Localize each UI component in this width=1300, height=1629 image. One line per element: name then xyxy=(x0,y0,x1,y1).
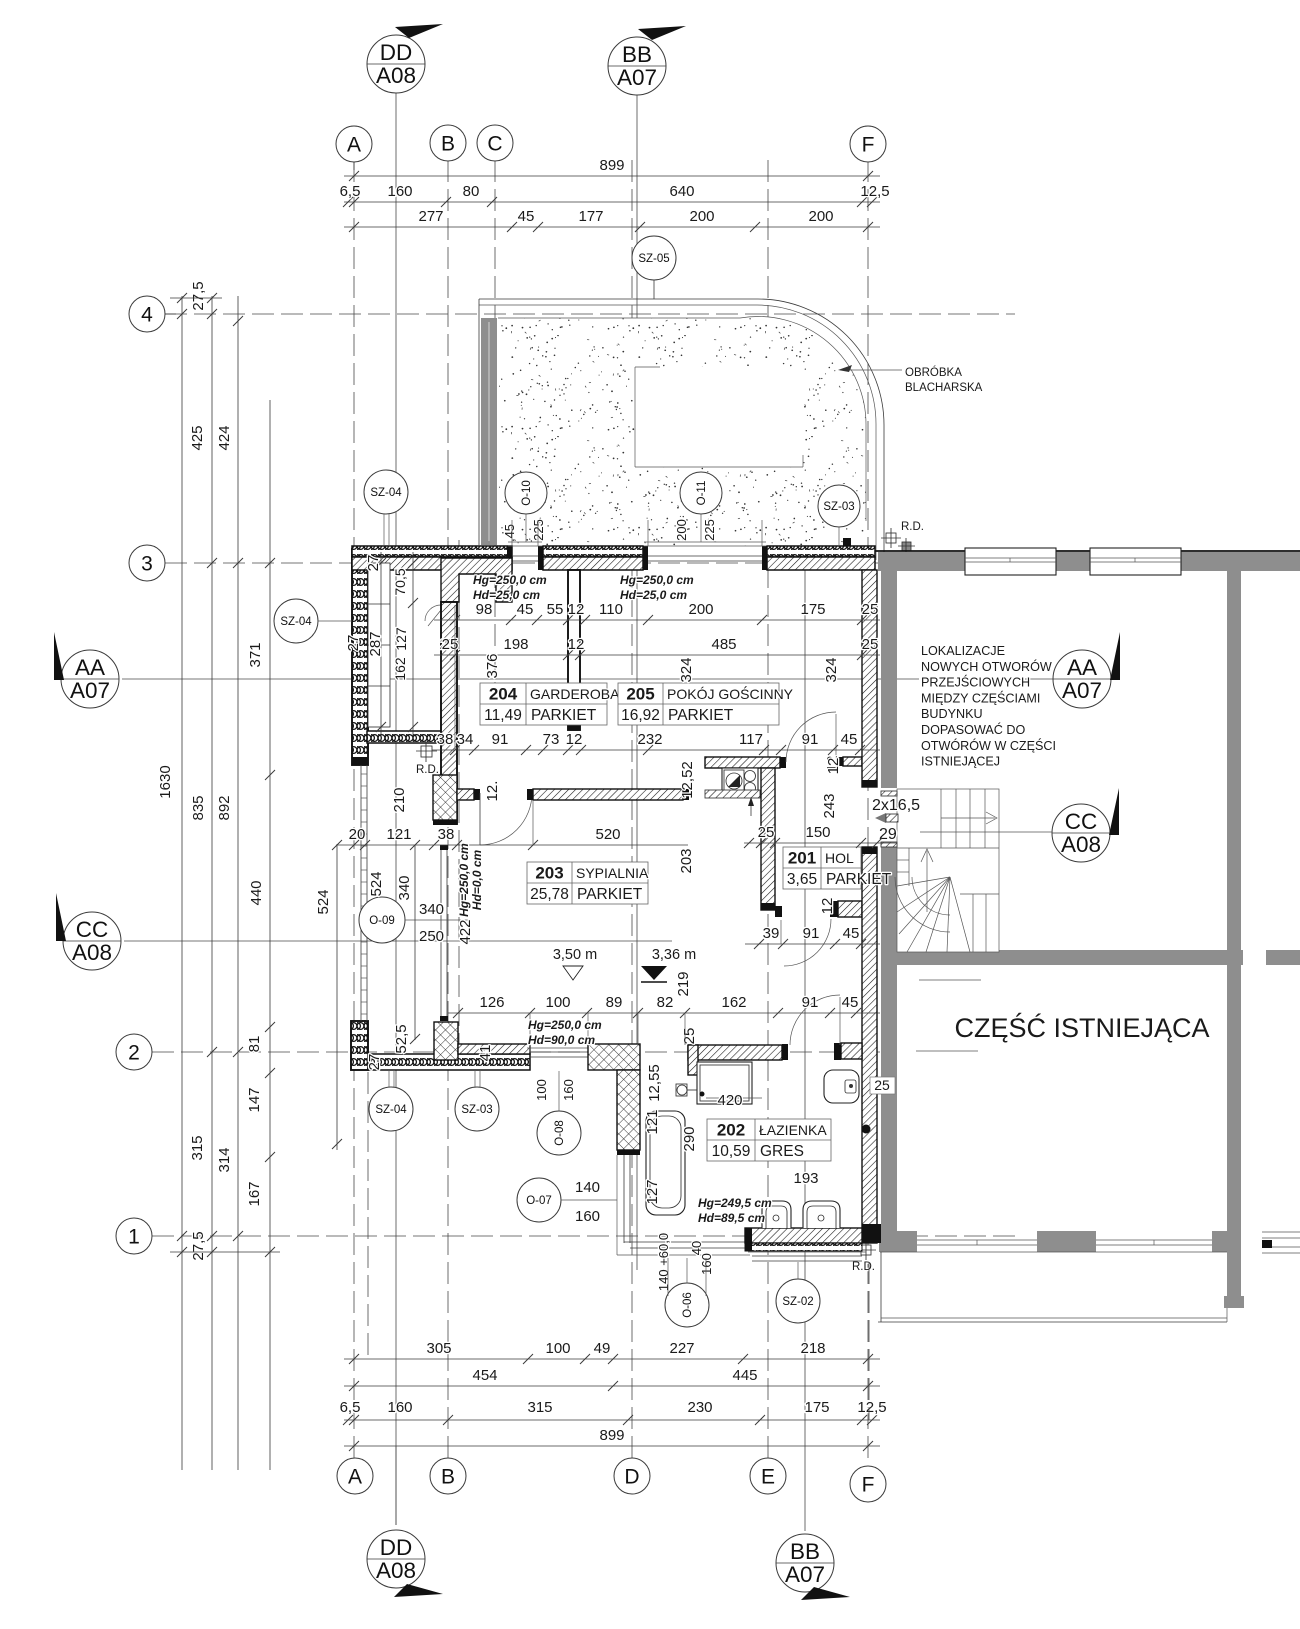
svg-text:892: 892 xyxy=(216,795,233,820)
svg-text:422: 422 xyxy=(457,919,474,944)
svg-text:12: 12 xyxy=(825,758,842,775)
svg-text:27: 27 xyxy=(345,635,362,652)
svg-text:203: 203 xyxy=(535,864,563,883)
svg-text:LOKALIZACJE: LOKALIZACJE xyxy=(921,644,1005,658)
svg-text:25: 25 xyxy=(874,1077,890,1093)
svg-text:B: B xyxy=(441,1465,455,1488)
svg-text:A07: A07 xyxy=(1062,678,1102,703)
svg-text:70,5: 70,5 xyxy=(392,568,408,595)
svg-text:12: 12 xyxy=(568,601,585,618)
svg-text:PARKIET: PARKIET xyxy=(826,871,892,888)
svg-text:GRES: GRES xyxy=(760,1143,804,1160)
svg-text:91: 91 xyxy=(492,731,509,748)
svg-text:25: 25 xyxy=(862,636,879,653)
svg-text:O-07: O-07 xyxy=(526,1195,552,1207)
svg-text:AA: AA xyxy=(75,655,105,680)
svg-text:89: 89 xyxy=(606,994,623,1011)
svg-text:91: 91 xyxy=(802,731,819,748)
svg-text:45: 45 xyxy=(517,601,534,618)
svg-text:AA: AA xyxy=(1067,655,1097,680)
svg-text:12,5: 12,5 xyxy=(857,1399,886,1416)
svg-text:A: A xyxy=(348,1465,362,1488)
svg-text:160: 160 xyxy=(387,1399,412,1416)
svg-text:BLACHARSKA: BLACHARSKA xyxy=(905,382,983,394)
svg-text:225: 225 xyxy=(702,519,717,541)
svg-text:CC: CC xyxy=(76,917,109,942)
svg-text:,45: ,45 xyxy=(502,524,517,542)
svg-text:440: 440 xyxy=(248,880,265,905)
svg-text:290: 290 xyxy=(681,1126,698,1151)
svg-text:218: 218 xyxy=(800,1340,825,1357)
svg-text:45: 45 xyxy=(518,208,535,225)
svg-text:O-08: O-08 xyxy=(554,1120,566,1146)
svg-text:SZ-04: SZ-04 xyxy=(280,616,312,628)
svg-text:80: 80 xyxy=(463,183,480,200)
svg-text:O-09: O-09 xyxy=(369,915,395,927)
svg-text:MIĘDZY CZĘŚCIAMI: MIĘDZY CZĘŚCIAMI xyxy=(921,690,1040,705)
svg-text:324: 324 xyxy=(678,657,695,682)
svg-text:SZ-03: SZ-03 xyxy=(461,1104,492,1116)
svg-text:27,5: 27,5 xyxy=(190,1231,207,1260)
svg-text:305: 305 xyxy=(426,1340,451,1357)
svg-text:SYPIALNIA: SYPIALNIA xyxy=(576,865,649,881)
svg-text:29: 29 xyxy=(879,826,897,843)
svg-text:25,78: 25,78 xyxy=(530,886,569,903)
svg-text:27: 27 xyxy=(366,1054,383,1071)
svg-text:SZ-04: SZ-04 xyxy=(370,487,402,499)
svg-text:Hg=250,0 cm: Hg=250,0 cm xyxy=(528,1018,602,1032)
svg-text:3,65: 3,65 xyxy=(787,871,817,888)
svg-text:12,5: 12,5 xyxy=(860,183,889,200)
svg-text:O-10: O-10 xyxy=(521,480,533,506)
svg-text:899: 899 xyxy=(599,157,624,174)
svg-text:CC: CC xyxy=(1065,809,1098,834)
svg-text:202: 202 xyxy=(717,1121,745,1140)
svg-text:200: 200 xyxy=(808,208,833,225)
svg-text:OTWÓRÓW W CZĘŚCI: OTWÓRÓW W CZĘŚCI xyxy=(921,738,1056,753)
svg-text:91: 91 xyxy=(802,994,819,1011)
svg-text:E: E xyxy=(761,1465,775,1488)
svg-text:PRZEJŚCIOWYCH: PRZEJŚCIOWYCH xyxy=(921,675,1030,690)
svg-text:38: 38 xyxy=(437,731,454,748)
svg-text:O-11: O-11 xyxy=(696,481,708,506)
svg-text:25: 25 xyxy=(862,601,879,618)
svg-text:371: 371 xyxy=(247,642,264,667)
svg-text:Hg=250,0 cm: Hg=250,0 cm xyxy=(457,843,471,917)
svg-text:45: 45 xyxy=(842,994,859,1011)
svg-text:A: A xyxy=(347,133,361,156)
svg-text:445: 445 xyxy=(732,1367,757,1384)
svg-text:205: 205 xyxy=(626,685,654,704)
svg-text:100: 100 xyxy=(545,1340,570,1357)
svg-text:376: 376 xyxy=(484,653,501,678)
svg-text:20: 20 xyxy=(349,826,366,843)
svg-text:Hd=90,0 cm: Hd=90,0 cm xyxy=(528,1033,595,1047)
svg-text:127: 127 xyxy=(644,1179,661,1204)
svg-text:DD: DD xyxy=(380,1535,413,1560)
svg-text:R.D.: R.D. xyxy=(852,1261,875,1273)
svg-text:PARKIET: PARKIET xyxy=(668,707,734,724)
svg-text:167: 167 xyxy=(246,1181,263,1206)
svg-text:ŁAZIENKA: ŁAZIENKA xyxy=(759,1122,827,1138)
svg-text:12,55: 12,55 xyxy=(646,1064,663,1102)
svg-text:640: 640 xyxy=(669,183,694,200)
svg-text:40: 40 xyxy=(689,1241,704,1255)
svg-text:230: 230 xyxy=(687,1399,712,1416)
svg-text:177: 177 xyxy=(578,208,603,225)
svg-text:ISTNIEJĄCEJ: ISTNIEJĄCEJ xyxy=(921,755,1000,769)
svg-text:98: 98 xyxy=(476,601,493,618)
svg-text:SZ-02: SZ-02 xyxy=(782,1296,813,1308)
svg-text:200: 200 xyxy=(689,208,714,225)
svg-text:A08: A08 xyxy=(1061,832,1101,857)
svg-text:1630: 1630 xyxy=(157,765,174,798)
svg-text:10,59: 10,59 xyxy=(712,1143,751,1160)
svg-text:162: 162 xyxy=(392,657,408,681)
svg-text:454: 454 xyxy=(472,1367,497,1384)
svg-text:52,5: 52,5 xyxy=(393,1024,410,1053)
svg-text:BB: BB xyxy=(622,42,652,67)
svg-text:250: 250 xyxy=(419,928,444,945)
svg-text:CZĘŚĆ ISTNIEJĄCA: CZĘŚĆ ISTNIEJĄCA xyxy=(954,1011,1209,1043)
svg-text:2x16,5: 2x16,5 xyxy=(872,797,920,814)
svg-text:126: 126 xyxy=(479,994,504,1011)
svg-text:91: 91 xyxy=(803,925,820,942)
svg-text:324: 324 xyxy=(823,657,840,682)
svg-text:A07: A07 xyxy=(617,65,657,90)
svg-text:B: B xyxy=(441,132,455,155)
svg-text:277: 277 xyxy=(418,208,443,225)
svg-text:F: F xyxy=(862,1473,875,1496)
svg-text:81: 81 xyxy=(246,1036,263,1053)
svg-text:38: 38 xyxy=(438,826,455,843)
svg-text:73: 73 xyxy=(543,731,560,748)
svg-text:225: 225 xyxy=(531,519,546,541)
svg-text:BB: BB xyxy=(790,1539,820,1564)
svg-text:A08: A08 xyxy=(376,1558,416,1583)
svg-text:SZ-05: SZ-05 xyxy=(638,253,669,265)
svg-text:227: 227 xyxy=(669,1340,694,1357)
svg-text:GARDEROBA: GARDEROBA xyxy=(530,686,620,702)
svg-text:243: 243 xyxy=(821,793,838,818)
svg-text:424: 424 xyxy=(216,425,233,450)
svg-text:315: 315 xyxy=(189,1135,206,1160)
svg-text:O-06: O-06 xyxy=(682,1292,694,1318)
svg-text:12.: 12. xyxy=(484,781,501,802)
svg-text:Hd=25,0 cm: Hd=25,0 cm xyxy=(473,588,540,602)
svg-text:12: 12 xyxy=(566,731,583,748)
svg-text:140 +60,0: 140 +60,0 xyxy=(656,1233,671,1291)
svg-text:25: 25 xyxy=(681,1028,698,1045)
svg-text:3: 3 xyxy=(141,552,153,575)
svg-text:100: 100 xyxy=(534,1079,549,1101)
svg-text:193: 193 xyxy=(793,1170,818,1187)
svg-text:D: D xyxy=(624,1465,639,1488)
svg-text:160: 160 xyxy=(561,1079,576,1101)
svg-text:835: 835 xyxy=(190,795,207,820)
svg-text:Hd=89,5 cm: Hd=89,5 cm xyxy=(698,1211,765,1225)
svg-text:BUDYNKU: BUDYNKU xyxy=(921,707,983,721)
svg-text:287: 287 xyxy=(367,631,384,656)
svg-text:524: 524 xyxy=(315,889,332,914)
svg-text:100: 100 xyxy=(545,994,570,1011)
svg-text:160: 160 xyxy=(699,1253,714,1275)
svg-text:A07: A07 xyxy=(785,1562,825,1587)
svg-text:45: 45 xyxy=(843,925,860,942)
svg-text:11,49: 11,49 xyxy=(484,707,522,724)
svg-text:200: 200 xyxy=(688,601,713,618)
svg-text:6,5: 6,5 xyxy=(340,183,361,200)
svg-text:82: 82 xyxy=(657,994,674,1011)
svg-text:175: 175 xyxy=(800,601,825,618)
svg-text:198: 198 xyxy=(503,636,528,653)
svg-text:Hd=0,0 cm: Hd=0,0 cm xyxy=(470,849,484,910)
svg-text:121: 121 xyxy=(386,826,411,843)
svg-text:41: 41 xyxy=(477,1045,494,1062)
svg-text:OBRÓBKA: OBRÓBKA xyxy=(905,366,962,379)
svg-text:SZ-04: SZ-04 xyxy=(375,1104,407,1116)
svg-text:POKÓJ GOŚCINNY: POKÓJ GOŚCINNY xyxy=(667,685,794,702)
svg-text:175: 175 xyxy=(804,1399,829,1416)
svg-text:A08: A08 xyxy=(72,940,112,965)
svg-text:121: 121 xyxy=(644,1109,661,1134)
svg-text:140: 140 xyxy=(575,1179,600,1196)
svg-text:3,50 m: 3,50 m xyxy=(553,947,597,963)
svg-text:DD: DD xyxy=(380,40,413,65)
svg-text:C: C xyxy=(487,132,502,155)
svg-text:147: 147 xyxy=(246,1087,263,1112)
svg-text:R.D.: R.D. xyxy=(416,764,439,776)
svg-text:117: 117 xyxy=(739,731,763,748)
svg-text:25: 25 xyxy=(758,824,775,841)
svg-text:127: 127 xyxy=(393,627,409,651)
svg-text:2: 2 xyxy=(128,1041,140,1064)
svg-text:Hg=250,0 cm: Hg=250,0 cm xyxy=(620,573,694,587)
svg-text:R.D.: R.D. xyxy=(901,521,924,533)
svg-text:210: 210 xyxy=(391,787,408,812)
svg-text:27: 27 xyxy=(365,555,382,572)
svg-text:39: 39 xyxy=(763,925,780,942)
svg-text:162: 162 xyxy=(721,994,746,1011)
svg-text:150: 150 xyxy=(805,824,830,841)
svg-text:160: 160 xyxy=(387,183,412,200)
svg-text:Hg=249,5 cm: Hg=249,5 cm xyxy=(698,1196,772,1210)
svg-text:899: 899 xyxy=(599,1427,624,1444)
svg-text:25: 25 xyxy=(442,636,459,653)
svg-text:49: 49 xyxy=(594,1340,611,1357)
svg-text:314: 314 xyxy=(216,1147,233,1172)
svg-text:232: 232 xyxy=(637,731,662,748)
svg-text:201: 201 xyxy=(788,849,816,868)
svg-text:34: 34 xyxy=(457,731,474,748)
svg-text:PARKIET: PARKIET xyxy=(577,886,643,903)
svg-text:16,92: 16,92 xyxy=(621,707,660,724)
svg-text:45: 45 xyxy=(841,731,858,748)
svg-text:200: 200 xyxy=(674,519,689,541)
svg-text:PARKIET: PARKIET xyxy=(531,707,597,724)
svg-text:340: 340 xyxy=(396,875,413,900)
svg-text:SZ-03: SZ-03 xyxy=(823,501,854,513)
svg-text:27,5: 27,5 xyxy=(190,281,207,310)
svg-text:12: 12 xyxy=(568,636,585,653)
svg-text:425: 425 xyxy=(189,425,206,450)
svg-text:485: 485 xyxy=(711,636,736,653)
svg-text:F: F xyxy=(862,133,875,156)
svg-text:DOPASOWAĆ DO: DOPASOWAĆ DO xyxy=(921,722,1025,737)
svg-text:4: 4 xyxy=(141,303,153,326)
svg-text:315: 315 xyxy=(527,1399,552,1416)
svg-text:520: 520 xyxy=(595,826,620,843)
svg-text:160: 160 xyxy=(575,1208,600,1225)
svg-text:HOL: HOL xyxy=(825,850,854,866)
svg-text:110: 110 xyxy=(599,601,623,618)
svg-text:Hd=25,0 cm: Hd=25,0 cm xyxy=(620,588,687,602)
svg-text:420: 420 xyxy=(717,1092,742,1109)
svg-text:NOWYCH OTWORÓW: NOWYCH OTWORÓW xyxy=(921,659,1052,674)
svg-text:340: 340 xyxy=(419,901,444,918)
svg-text:1: 1 xyxy=(128,1225,140,1248)
svg-text:3,36 m: 3,36 m xyxy=(652,947,696,963)
svg-text:204: 204 xyxy=(489,685,518,704)
svg-text:6,5: 6,5 xyxy=(340,1399,361,1416)
svg-text:524: 524 xyxy=(368,871,385,896)
svg-text:Hg=250,0 cm: Hg=250,0 cm xyxy=(473,573,547,587)
svg-text:12: 12 xyxy=(819,898,836,915)
svg-text:A07: A07 xyxy=(70,678,110,703)
svg-text:219: 219 xyxy=(675,971,692,996)
svg-text:55: 55 xyxy=(547,601,564,618)
svg-text:203: 203 xyxy=(678,848,695,873)
svg-text:12,52: 12,52 xyxy=(679,761,696,799)
svg-text:A08: A08 xyxy=(376,63,416,88)
